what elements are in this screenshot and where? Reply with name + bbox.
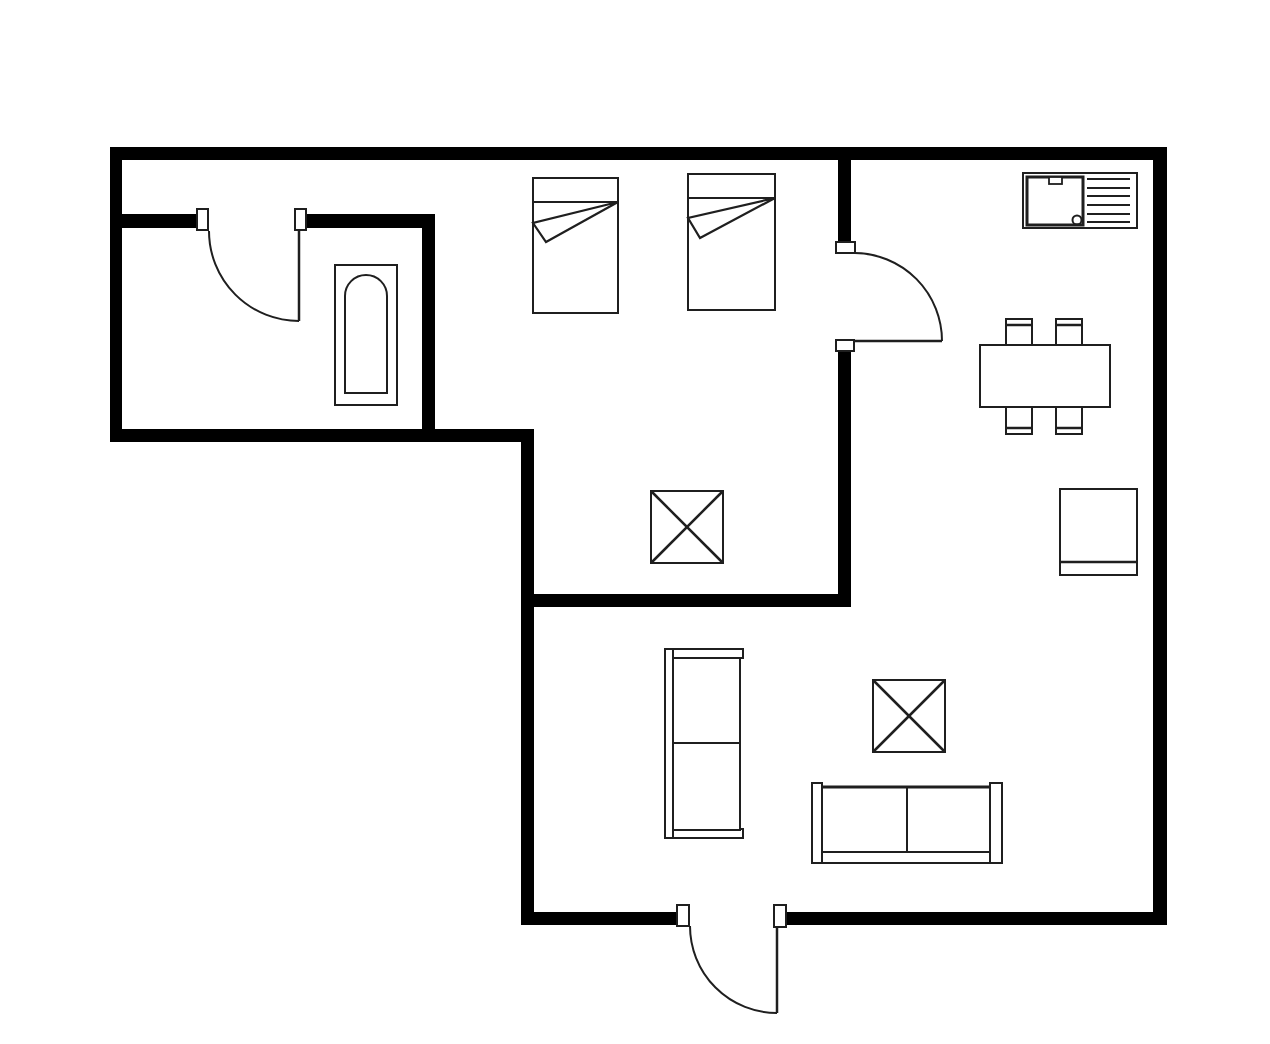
bed-2-mattress (688, 174, 775, 310)
floor-plan (0, 0, 1270, 1044)
sofa-arm-2 (990, 783, 1002, 863)
wall-outer-right (1153, 147, 1167, 925)
dining-chair-nw (1006, 319, 1032, 345)
dining-chair-nw-seat (1006, 319, 1032, 345)
living-room-table (873, 680, 945, 752)
wall-bedroom-east-upper (838, 159, 851, 243)
wall-bath-top-west (122, 214, 198, 228)
wall-bottom-west (521, 912, 689, 925)
jamb-bathroom-left (197, 209, 208, 230)
kitchen-sink-faucet (1049, 177, 1062, 184)
wardrobe (665, 649, 743, 838)
wall-bath-top-east (306, 214, 435, 228)
bedroom-side-table (651, 491, 723, 563)
wall-bottom-east (786, 912, 1167, 925)
wardrobe-cap-1 (665, 649, 743, 658)
wall-bedroom-east-lower (838, 350, 851, 607)
kitchen-sink (1023, 173, 1137, 228)
wall-bedroom-south (533, 594, 850, 607)
wall-bath-bottom (110, 429, 533, 442)
jamb-kitchen-bottom (836, 340, 854, 351)
dining-chair-se (1056, 407, 1082, 434)
bed-2 (688, 174, 775, 310)
dining-chair-ne (1056, 319, 1082, 345)
bed-1 (533, 178, 618, 313)
dining-chair-se-seat (1056, 407, 1082, 434)
dining-table-top (980, 345, 1110, 407)
wall-living-left (521, 429, 534, 925)
kitchen-sink-counter (1023, 173, 1137, 228)
bed-1-mattress (533, 178, 618, 313)
dining-table (980, 345, 1110, 407)
jamb-entry-right (774, 905, 786, 927)
jamb-bathroom-right (295, 209, 306, 230)
dining-chair-sw (1006, 407, 1032, 434)
wardrobe-side-panel (665, 649, 673, 838)
sofa (812, 783, 1002, 863)
floor-plan-svg (0, 0, 1270, 1044)
bathtub (335, 265, 397, 405)
armchair (1060, 489, 1137, 575)
sofa-arm-1 (812, 783, 822, 863)
dining-chair-sw-seat (1006, 407, 1032, 434)
wall-bath-right (422, 214, 435, 429)
wall-outer-top (110, 147, 1167, 160)
jamb-entry-left (677, 905, 689, 926)
dining-chair-ne-seat (1056, 319, 1082, 345)
jamb-kitchen-top (836, 242, 855, 253)
wall-outer-left (110, 147, 122, 442)
sofa-base (812, 852, 1002, 863)
